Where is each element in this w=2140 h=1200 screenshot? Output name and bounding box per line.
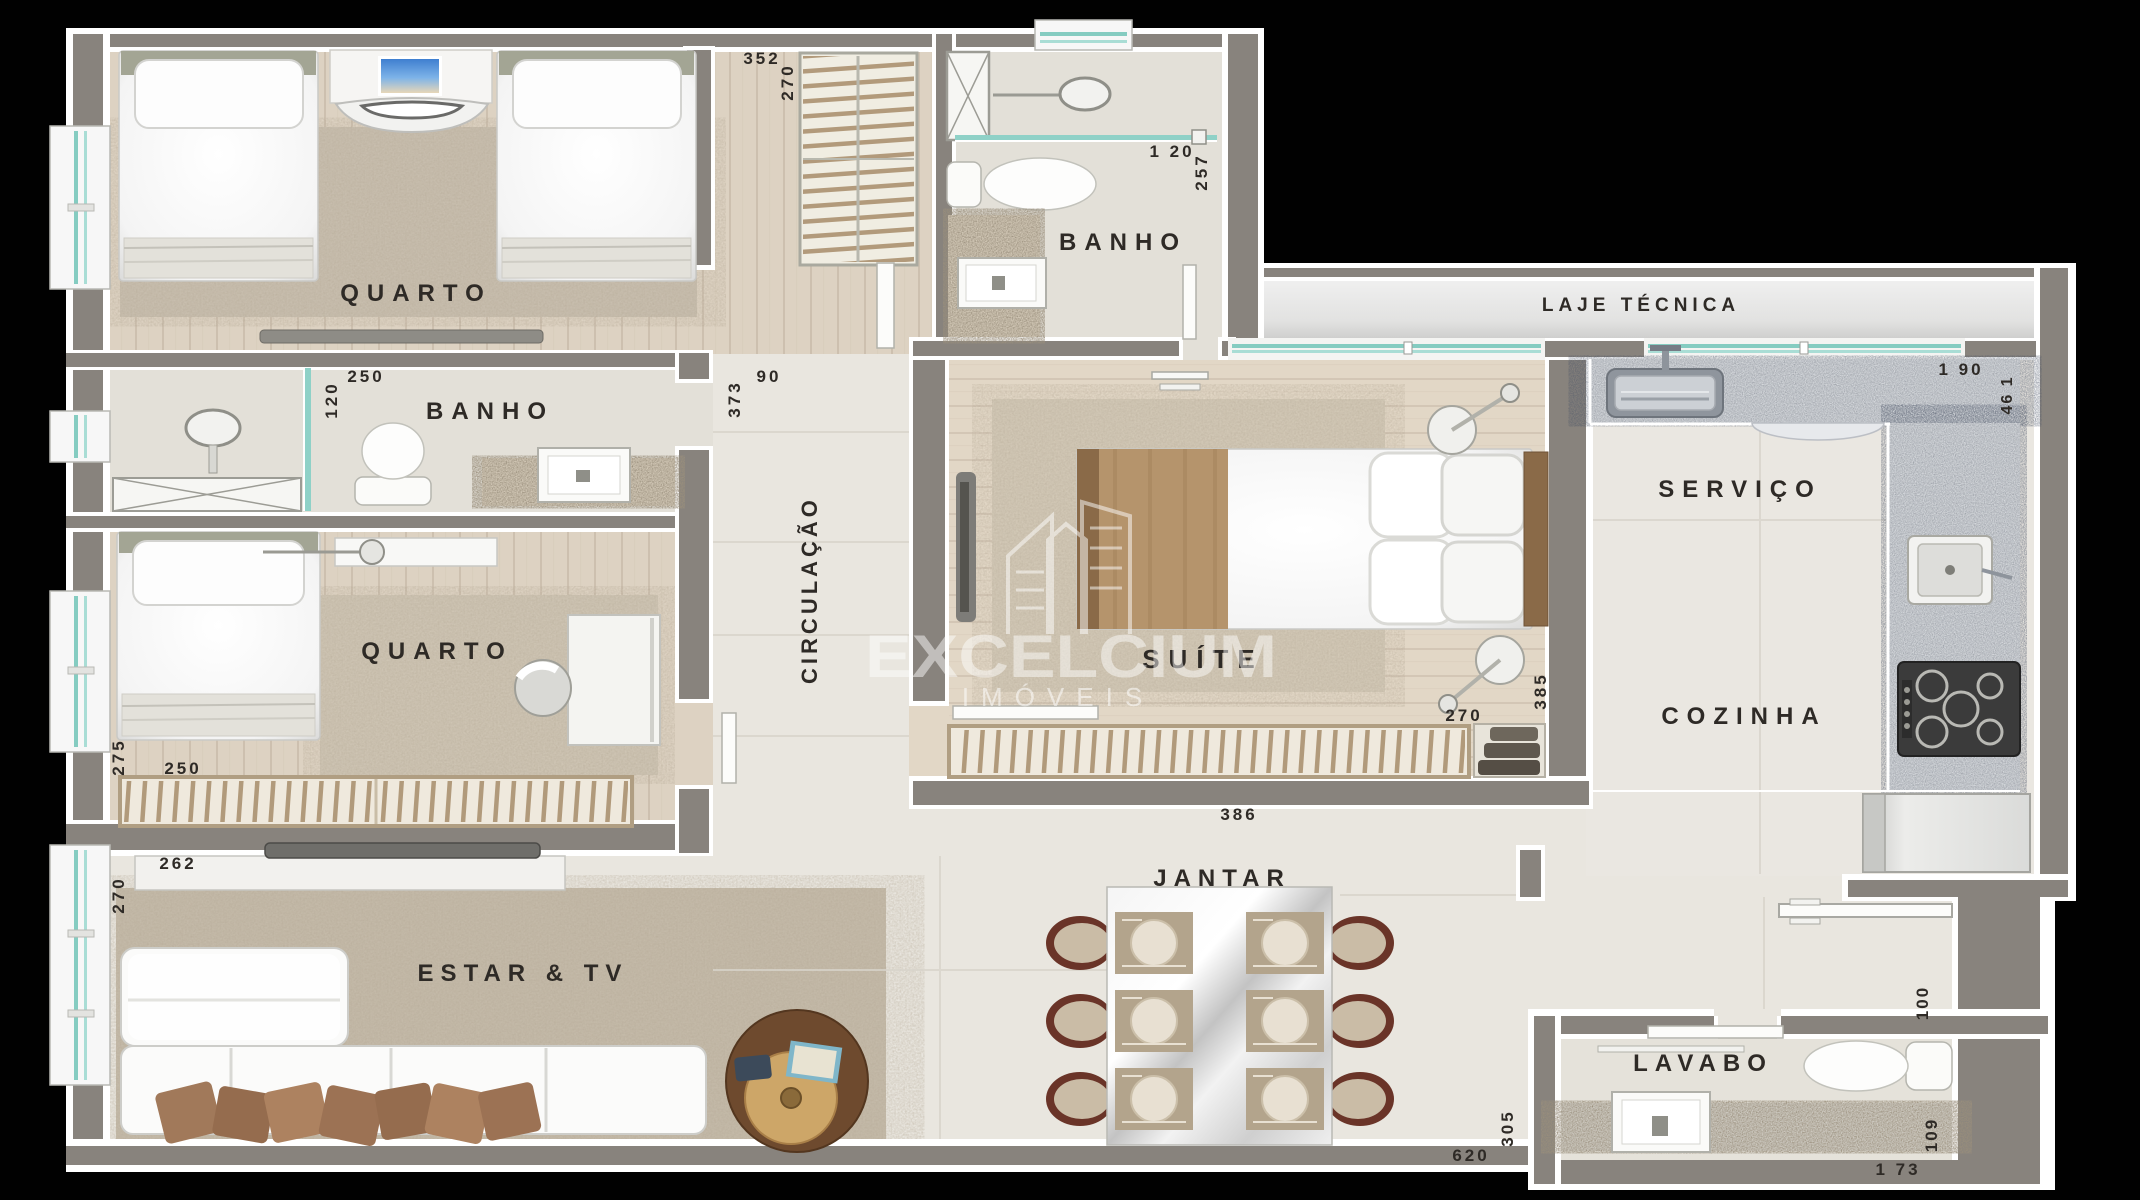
svg-text:270: 270 [778,63,797,100]
svg-text:250: 250 [347,367,384,386]
svg-text:385: 385 [1531,672,1550,709]
svg-text:46 1: 46 1 [1999,375,2016,414]
svg-text:1 73: 1 73 [1875,1160,1920,1179]
svg-text:275: 275 [109,738,128,775]
svg-text:270: 270 [1445,706,1482,725]
svg-text:1 90: 1 90 [1938,360,1983,379]
svg-text:BANHO: BANHO [1059,229,1187,256]
svg-text:373: 373 [725,380,744,417]
svg-text:QUARTO: QUARTO [361,638,513,665]
svg-text:305: 305 [1498,1109,1517,1146]
svg-text:SERVIÇO: SERVIÇO [1658,476,1822,503]
svg-text:LAVABO: LAVABO [1633,1050,1773,1077]
svg-text:109: 109 [1922,1118,1941,1152]
svg-text:CIRCULAÇÃO: CIRCULAÇÃO [797,496,822,684]
svg-text:270: 270 [109,876,128,913]
svg-text:120: 120 [322,381,341,418]
svg-text:LAJE TÉCNICA: LAJE TÉCNICA [1542,294,1740,316]
svg-text:COZINHA: COZINHA [1661,703,1826,730]
svg-text:ESTAR & TV: ESTAR & TV [418,960,629,987]
svg-text:IMÓVEIS: IMÓVEIS [962,682,1154,712]
svg-text:JANTAR: JANTAR [1153,865,1291,892]
svg-text:EXCELCIUM: EXCELCIUM [865,623,1277,690]
svg-text:90: 90 [757,367,782,386]
svg-text:QUARTO: QUARTO [340,280,492,307]
svg-text:BANHO: BANHO [426,398,554,425]
svg-text:1 20: 1 20 [1149,142,1194,161]
svg-text:352: 352 [743,49,780,68]
svg-text:386: 386 [1220,805,1257,824]
svg-text:257: 257 [1192,153,1211,190]
svg-text:250: 250 [164,759,201,778]
svg-text:100: 100 [1913,986,1932,1020]
svg-text:262: 262 [159,854,196,873]
svg-text:620: 620 [1452,1146,1489,1165]
